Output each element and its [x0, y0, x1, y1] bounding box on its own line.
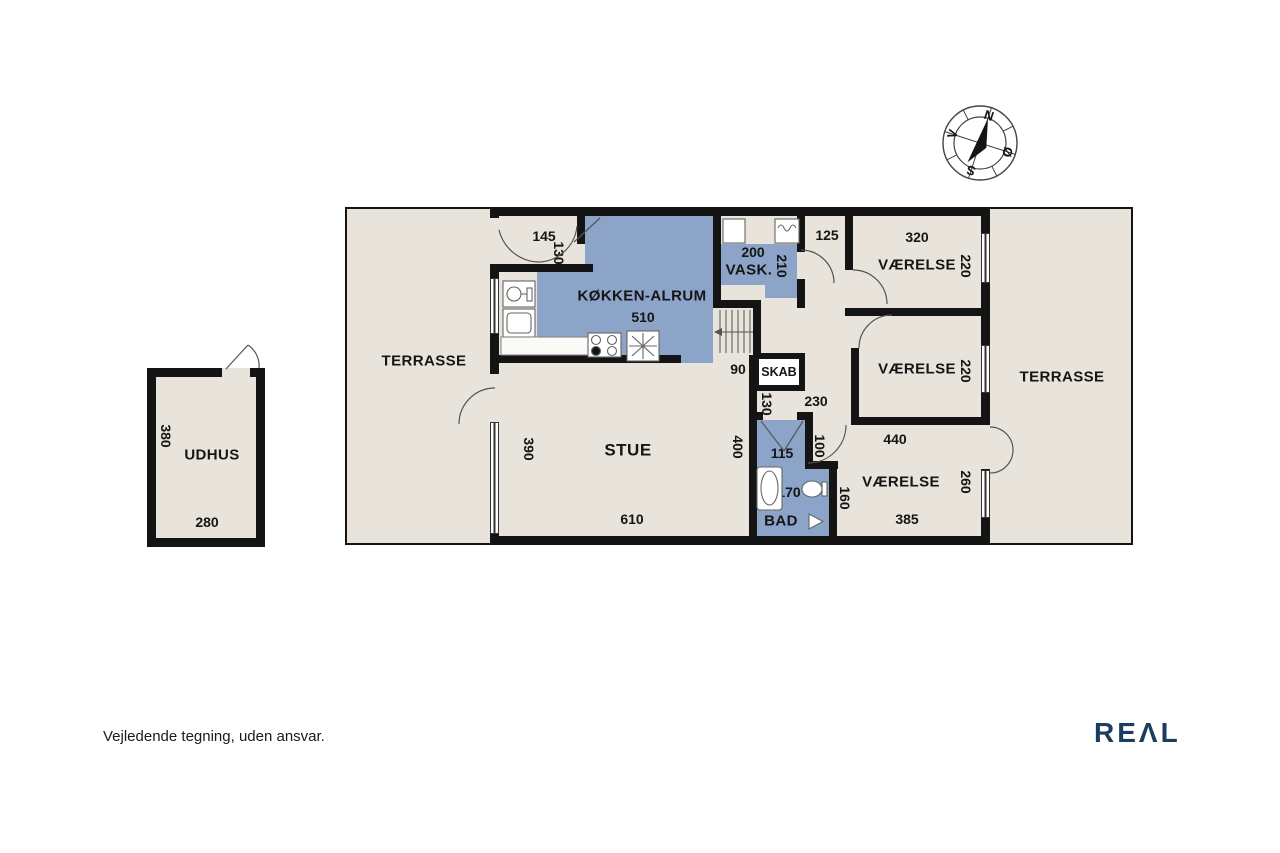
- bedroom-bottom-window: [981, 470, 990, 518]
- dim-bedroom-top-w: 320: [905, 230, 928, 244]
- dim-udhus-h: 380: [159, 424, 173, 447]
- disclaimer-text: Vejledende tegning, uden ansvar.: [103, 728, 325, 745]
- compass-rose: N V Ø S: [943, 106, 1017, 180]
- dim-bedroom-bottom-wtop: 440: [883, 432, 906, 446]
- wall: [713, 300, 761, 308]
- room-label-terrasse-right: TERRASSE: [1020, 370, 1105, 385]
- room-label-vask: VASK.: [726, 263, 773, 278]
- closet-box: SKAB: [753, 353, 805, 391]
- wall: [499, 355, 681, 363]
- dim-kitchen-w: 510: [631, 310, 654, 324]
- compass-v: V: [944, 127, 961, 140]
- udhus-door-leaf: [226, 345, 248, 369]
- wall: [797, 412, 813, 420]
- dim-bad-corridor-h: 100: [813, 434, 827, 457]
- room-label-terrasse-left: TERRASSE: [382, 354, 467, 369]
- wall: [797, 216, 805, 252]
- udhus-door-opening: [222, 368, 250, 377]
- wall: [490, 536, 990, 545]
- stue-window: [490, 422, 499, 534]
- dim-vask-w: 200: [741, 245, 764, 259]
- compass-s: S: [964, 162, 977, 179]
- dim-bedroom-bottom-h: 260: [959, 470, 973, 493]
- compass-o: Ø: [999, 145, 1016, 159]
- dim-vask-h: 210: [775, 254, 789, 277]
- compass-outer-circle: [943, 106, 1017, 180]
- dim-stair-w: 90: [730, 362, 746, 376]
- dim-stue-h-right: 400: [731, 435, 745, 458]
- laundry-area-notch: [765, 285, 797, 298]
- compass-needle: [968, 118, 989, 162]
- stue-door-opening: [490, 374, 499, 422]
- wall: [845, 216, 853, 270]
- kitchen-window: [490, 278, 499, 334]
- dim-hall-w2: 230: [804, 394, 827, 408]
- terrasse-door-opening: [981, 425, 990, 469]
- bedroom-top-window: [981, 233, 990, 283]
- room-label-bedroom-bottom: VÆRELSE: [862, 475, 940, 490]
- udhus-door-arc: [248, 345, 259, 368]
- compass-inner-circle: [954, 117, 1006, 169]
- room-label-bedroom-mid: VÆRELSE: [878, 362, 956, 377]
- dim-bad-inner: 170: [777, 485, 800, 499]
- dim-stue-h-left: 390: [522, 437, 536, 460]
- dim-bedroom-mid-h: 220: [959, 359, 973, 382]
- dim-bad-w: 115: [771, 446, 794, 460]
- bedroom-mid-window: [981, 345, 990, 393]
- kitchen-area-left: [537, 272, 585, 363]
- dim-entry-h: 130: [552, 241, 566, 264]
- wall: [851, 348, 859, 425]
- closet-label: SKAB: [761, 365, 796, 379]
- room-label-kitchen: KØKKEN-ALRUM: [578, 289, 707, 304]
- wall: [713, 216, 721, 308]
- dim-bedroom-bottom-wbot: 385: [895, 512, 918, 526]
- real-logo: REΛL: [1094, 717, 1181, 749]
- room-label-udhus: UDHUS: [184, 448, 239, 463]
- dim-hall-w: 125: [815, 228, 838, 242]
- wall: [490, 207, 990, 216]
- bath-area-ext: [805, 467, 831, 536]
- wall: [797, 279, 805, 308]
- room-label-bedroom-top: VÆRELSE: [878, 258, 956, 273]
- floorplan-page: SKAB TERRASSE TERRASSE 145 130 KØKKEN-AL…: [0, 0, 1280, 853]
- compass-n: N: [982, 107, 996, 124]
- wall: [577, 216, 585, 244]
- room-label-bad: BAD: [764, 514, 798, 529]
- compass-ticks: [947, 110, 1013, 176]
- room-label-stue: STUE: [604, 442, 651, 459]
- dim-corridor-h: 130: [760, 392, 774, 415]
- wall: [499, 264, 593, 272]
- dim-bedroom-top-h: 220: [959, 254, 973, 277]
- entry-door-opening: [490, 218, 499, 264]
- dim-bad-side-h: 160: [838, 486, 852, 509]
- dim-stue-w: 610: [620, 512, 643, 526]
- compass-axes: [945, 108, 1015, 178]
- wall: [845, 308, 981, 316]
- dim-udhus-w: 280: [195, 515, 218, 529]
- wall: [829, 467, 837, 536]
- wall: [753, 308, 761, 355]
- wall: [851, 417, 981, 425]
